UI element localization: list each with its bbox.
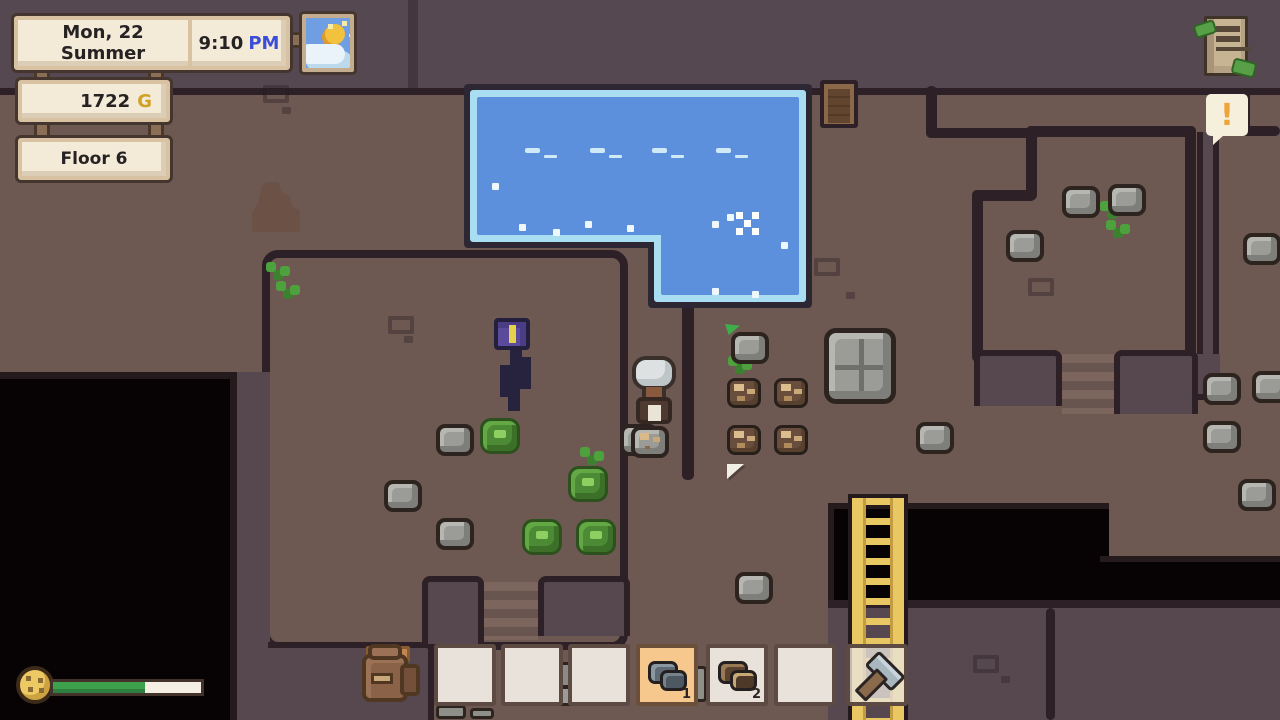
plant[interactable]	[568, 466, 608, 502]
wall-line	[926, 128, 1040, 138]
monster-eye	[509, 325, 516, 343]
rock[interactable]	[1252, 371, 1280, 403]
water-dot	[519, 224, 526, 231]
stamina-bar	[50, 679, 204, 696]
water-glint	[716, 148, 731, 153]
quest-board-icon[interactable]	[1196, 14, 1254, 80]
cloud-icon	[302, 44, 345, 64]
plant[interactable]	[480, 418, 520, 454]
water-dot	[712, 288, 719, 295]
wall-strip	[237, 372, 270, 720]
copper[interactable]	[727, 378, 761, 408]
npc-apron	[648, 405, 661, 421]
hotbar-slot-5-copper-ore[interactable]: 2	[706, 644, 768, 706]
slab	[436, 705, 466, 719]
hotbar-slot-2[interactable]	[501, 644, 563, 706]
deco-dot	[282, 107, 291, 114]
stamina-cookie-icon	[16, 666, 54, 704]
copper[interactable]	[774, 378, 808, 408]
alert-bubble[interactable]: !	[1206, 94, 1248, 136]
date-label: Mon, 22 Summer	[18, 22, 188, 64]
rock[interactable]	[1203, 421, 1241, 453]
wall-line	[682, 298, 694, 480]
stairs-south[interactable]	[484, 582, 538, 640]
rock[interactable]	[1108, 184, 1146, 216]
floor-label: Floor 6	[61, 149, 128, 169]
stamina-fill	[53, 682, 145, 693]
item-count: 1	[682, 687, 691, 702]
wall-block	[1114, 350, 1198, 414]
water-dot	[712, 221, 719, 228]
water-dot	[553, 229, 560, 236]
alert-exclamation: !	[1220, 98, 1234, 133]
flag-marker[interactable]	[727, 464, 744, 479]
rock[interactable]	[735, 572, 773, 604]
plant[interactable]	[522, 519, 562, 555]
backpack-strap	[371, 673, 393, 684]
slab	[470, 708, 494, 719]
water-dot	[585, 221, 592, 228]
rock[interactable]	[436, 518, 474, 550]
deco	[388, 316, 414, 334]
item-count: 2	[752, 687, 761, 702]
monster-plant[interactable]	[492, 314, 540, 386]
wall-line	[1185, 126, 1196, 366]
deco-dot	[404, 336, 413, 343]
copper[interactable]	[774, 425, 808, 455]
rock[interactable]	[436, 424, 474, 456]
stairs-east-room[interactable]	[1062, 354, 1114, 414]
water-dot	[492, 183, 499, 190]
sun-icon	[325, 24, 345, 44]
plant[interactable]	[576, 519, 616, 555]
sun-sparkles-icon	[342, 21, 347, 26]
hotbar-slot-1[interactable]	[434, 644, 496, 706]
sparkle-x	[744, 220, 751, 227]
water-glint	[652, 148, 667, 153]
rock-flag[interactable]	[731, 332, 769, 364]
water-dot	[781, 242, 788, 249]
rock[interactable]	[1243, 233, 1280, 265]
deco	[973, 655, 999, 673]
sprout	[276, 281, 286, 291]
quest-list-lines	[1216, 26, 1240, 32]
rock[interactable]	[1062, 186, 1100, 218]
deco	[814, 258, 840, 276]
hotbar-slot-6[interactable]	[774, 644, 836, 706]
gold-panel: 1722 G	[18, 80, 170, 122]
rock-big[interactable]	[824, 328, 896, 404]
door[interactable]	[820, 80, 858, 128]
wall-strip	[1197, 132, 1219, 360]
monster-stem	[510, 350, 522, 382]
wall-seam	[1046, 608, 1055, 720]
sprout	[580, 447, 590, 457]
rock[interactable]	[384, 480, 422, 512]
water-glint	[590, 148, 605, 153]
deco-dot	[1001, 676, 1010, 683]
water-dot	[752, 291, 759, 298]
rock[interactable]	[916, 422, 954, 454]
npc-elder[interactable]	[630, 356, 678, 428]
hotbar-slot-3[interactable]	[568, 644, 630, 706]
wall-line	[1026, 126, 1196, 137]
datetime-panel: Mon, 22 Summer 9:10PM	[14, 16, 290, 70]
wall-seam	[408, 0, 418, 92]
hotbar-slot-7-hammer[interactable]	[846, 644, 908, 706]
weather-icon	[302, 14, 354, 72]
sprout	[1106, 220, 1116, 230]
water-pool	[464, 84, 812, 308]
copper[interactable]	[727, 425, 761, 455]
backpack-flap	[368, 644, 402, 660]
wall-block	[538, 576, 630, 636]
wall-block	[422, 576, 484, 644]
hammer-icon	[847, 645, 906, 704]
floor-panel: Floor 6	[18, 138, 170, 180]
water-dot	[627, 225, 634, 232]
mine-pit	[1100, 556, 1280, 603]
deco	[1028, 278, 1054, 296]
wall-line	[972, 190, 983, 362]
game-viewport: Mon, 22 Summer 9:10PM 1722 G Floor 6 ! 1…	[0, 0, 1280, 720]
meridiem-label: PM	[248, 33, 279, 54]
deco-dot	[846, 292, 855, 299]
rock[interactable]	[1006, 230, 1044, 262]
gold-currency-label: G	[137, 91, 152, 112]
wall-line	[1026, 126, 1037, 200]
water-glint	[525, 148, 540, 153]
water-dot	[727, 214, 734, 221]
sprout	[266, 262, 276, 272]
rock[interactable]	[1203, 373, 1241, 405]
npc-hair	[632, 356, 676, 390]
stalagmite[interactable]	[252, 182, 300, 232]
backpack[interactable]	[360, 642, 424, 706]
rock-speckled[interactable]	[631, 426, 669, 458]
deco	[263, 85, 289, 103]
hotbar-slot-4-stone[interactable]: 1	[636, 644, 698, 706]
wall-block	[974, 350, 1062, 406]
rock[interactable]	[1238, 479, 1276, 511]
time-label: 9:10PM	[192, 33, 286, 54]
gold-amount: 1722	[80, 91, 130, 112]
backpack-pocket	[400, 664, 420, 696]
